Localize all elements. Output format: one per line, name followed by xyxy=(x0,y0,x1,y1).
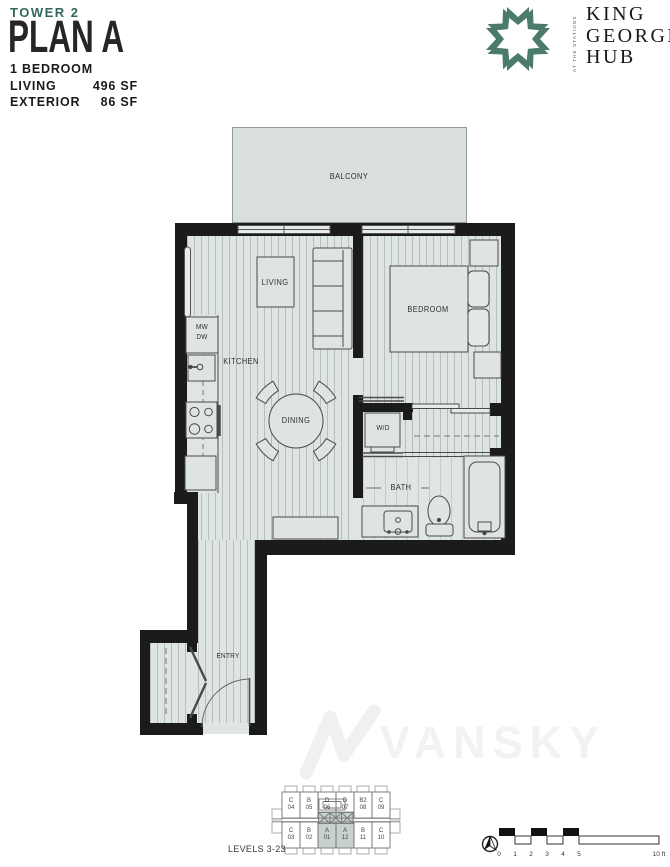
svg-text:2: 2 xyxy=(529,851,533,858)
svg-text:09: 09 xyxy=(378,805,385,811)
levels-label: LEVELS 3-23 xyxy=(228,844,286,854)
svg-text:05: 05 xyxy=(306,805,313,811)
entry-label: ENTRY xyxy=(205,653,251,660)
bath-vanity xyxy=(362,506,418,537)
bedroom-closet xyxy=(403,404,499,457)
svg-text:10 ft: 10 ft xyxy=(653,851,666,858)
entry-closet xyxy=(166,647,206,718)
svg-text:08: 08 xyxy=(360,805,367,811)
console-bench xyxy=(273,517,338,539)
svg-text:5: 5 xyxy=(577,851,581,858)
svg-text:C: C xyxy=(289,798,294,804)
mw-label: MW xyxy=(187,323,216,333)
svg-text:A: A xyxy=(325,828,329,834)
wd-label: W/D xyxy=(365,425,402,432)
mw-dw-label: MW DW xyxy=(187,323,216,343)
svg-text:11: 11 xyxy=(360,835,367,841)
balcony-label: BALCONY xyxy=(321,172,376,181)
north-arrow-icon xyxy=(483,836,498,852)
kitchen-label: KITCHEN xyxy=(213,357,268,366)
dining-label: DINING xyxy=(268,416,323,425)
svg-text:04: 04 xyxy=(288,805,295,811)
svg-text:4: 4 xyxy=(561,851,565,858)
bath-label: BATH xyxy=(373,483,428,492)
nightstand xyxy=(474,352,501,378)
svg-text:10: 10 xyxy=(378,835,385,841)
scale-bar-ticks: 0 1 2 3 4 5 10 ft xyxy=(497,851,665,858)
kitchen-cabinet xyxy=(185,456,216,490)
svg-text:B: B xyxy=(361,828,365,834)
living-label: LIVING xyxy=(247,278,302,287)
svg-text:3: 3 xyxy=(545,851,549,858)
floorplan-sheet: VANSKY TOWER 2 PLAN A 1 BEDROOM LIVING 4… xyxy=(0,0,670,867)
bedroom-label: BEDROOM xyxy=(400,305,455,314)
fixtures-layer xyxy=(0,0,670,867)
svg-text:B: B xyxy=(307,798,311,804)
scale-bar-segments xyxy=(499,828,659,844)
svg-text:B: B xyxy=(307,828,311,834)
bathtub xyxy=(464,456,505,538)
svg-text:D: D xyxy=(343,798,348,804)
entry-door xyxy=(202,678,250,727)
window-bedroom xyxy=(362,226,455,234)
window-living xyxy=(238,226,330,234)
svg-text:07: 07 xyxy=(342,805,349,811)
svg-text:12: 12 xyxy=(342,835,349,841)
sofa xyxy=(313,248,352,349)
svg-text:C: C xyxy=(289,828,294,834)
svg-text:D: D xyxy=(325,798,330,804)
svg-text:06: 06 xyxy=(324,805,331,811)
svg-text:01: 01 xyxy=(324,835,331,841)
window-side xyxy=(185,247,191,317)
stove xyxy=(186,402,220,438)
svg-text:03: 03 xyxy=(288,835,295,841)
dw-label: DW xyxy=(187,333,216,343)
svg-text:C: C xyxy=(379,798,384,804)
scale-bar: 0 1 2 3 4 5 10 ft xyxy=(478,820,670,862)
toilet xyxy=(426,496,453,536)
svg-text:0: 0 xyxy=(497,851,501,858)
svg-text:C: C xyxy=(379,828,384,834)
nightstand xyxy=(470,240,498,266)
svg-text:B2: B2 xyxy=(359,798,367,804)
svg-text:1: 1 xyxy=(513,851,517,858)
svg-text:A: A xyxy=(343,828,347,834)
svg-text:02: 02 xyxy=(306,835,313,841)
kitchen-sink xyxy=(188,355,215,381)
